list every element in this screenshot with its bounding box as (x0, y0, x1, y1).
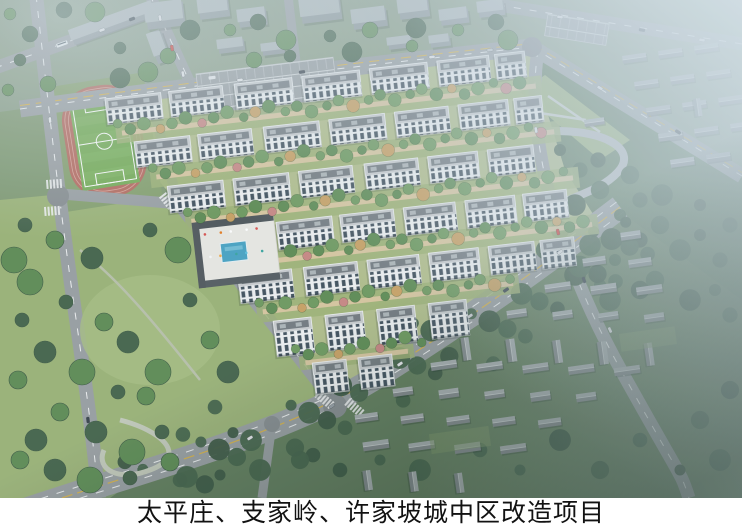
caption-bar: 太平庄、支家岭、许家坡城中区改造项目 (0, 498, 742, 529)
project-rendering: 太平庄、支家岭、许家坡城中区改造项目 (0, 0, 742, 529)
haze-overlay (0, 0, 742, 498)
aerial-view (0, 0, 742, 498)
project-title: 太平庄、支家岭、许家坡城中区改造项目 (137, 498, 605, 529)
